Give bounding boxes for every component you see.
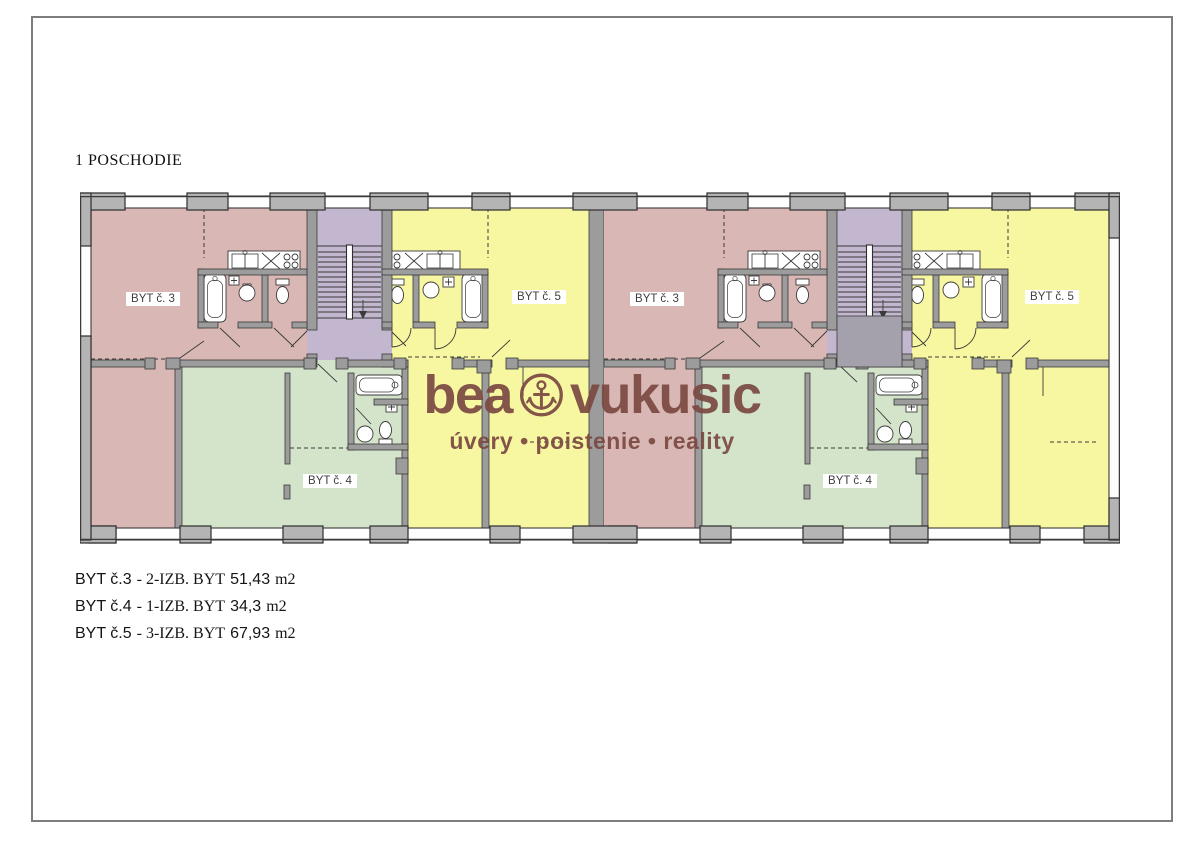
floorplan-page: 1 POSCHODIE bbox=[0, 0, 1191, 842]
room-label-byt5-right: BYT č. 5 bbox=[1025, 290, 1079, 304]
room-label-byt3-right: BYT č. 3 bbox=[630, 292, 684, 306]
legend-apartment: BYT č.4 bbox=[75, 598, 132, 615]
room-label-byt5-left: BYT č. 5 bbox=[512, 290, 566, 304]
legend-line-byt5: BYT č.5- 3-IZB. BYT67,93m2 bbox=[75, 620, 301, 647]
apartment-legend: BYT č.3- 2-IZB. BYT51,43m2 BYT č.4- 1-IZ… bbox=[75, 566, 301, 647]
brand-watermark: bea vukusic úvery • poistenie • reality bbox=[423, 368, 760, 455]
legend-unit: m2 bbox=[266, 598, 286, 615]
brand-text-right: vukusic bbox=[570, 368, 761, 422]
anchor-icon bbox=[517, 371, 565, 419]
legend-area: 67,93 bbox=[230, 625, 270, 642]
legend-area: 51,43 bbox=[230, 571, 270, 588]
legend-description: - 3-IZB. BYT bbox=[137, 625, 225, 642]
brand-text-left: bea bbox=[423, 368, 512, 422]
legend-line-byt4: BYT č.4- 1-IZB. BYT34,3m2 bbox=[75, 593, 301, 620]
room-label-byt3-left: BYT č. 3 bbox=[126, 292, 180, 306]
legend-description: - 2-IZB. BYT bbox=[137, 571, 225, 588]
room-label-byt4-right: BYT č. 4 bbox=[823, 474, 877, 488]
brand-tagline: úvery • poistenie • reality bbox=[423, 428, 760, 455]
legend-apartment: BYT č.3 bbox=[75, 571, 132, 588]
legend-unit: m2 bbox=[275, 571, 295, 588]
legend-unit: m2 bbox=[275, 625, 295, 642]
page-title: 1 POSCHODIE bbox=[75, 152, 182, 170]
room-label-byt4-left: BYT č. 4 bbox=[303, 474, 357, 488]
legend-area: 34,3 bbox=[230, 598, 261, 615]
legend-apartment: BYT č.5 bbox=[75, 625, 132, 642]
legend-description: - 1-IZB. BYT bbox=[137, 598, 225, 615]
brand-logo: bea vukusic bbox=[423, 368, 760, 422]
legend-line-byt3: BYT č.3- 2-IZB. BYT51,43m2 bbox=[75, 566, 301, 593]
